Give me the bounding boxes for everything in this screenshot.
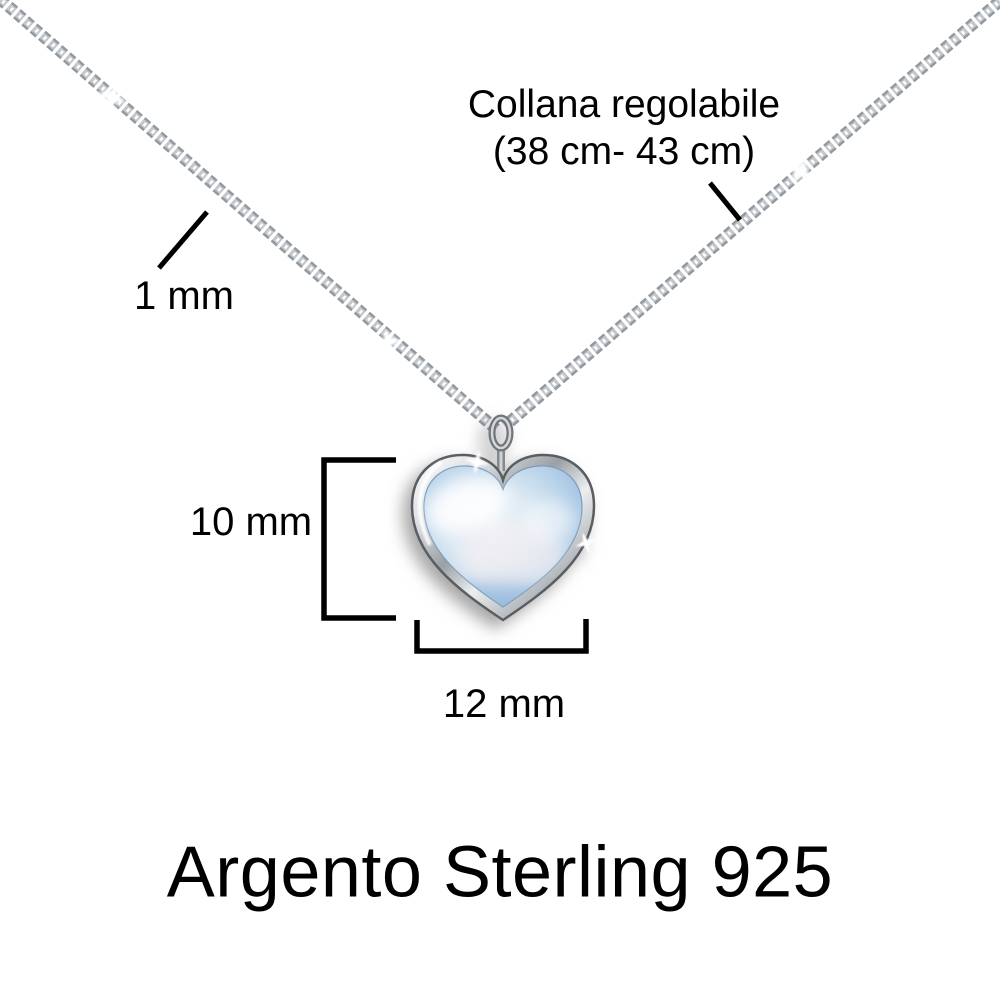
- chain-left-strand: [0, 0, 496, 429]
- pendant-height-label: 10 mm: [190, 499, 312, 545]
- height-bracket: [324, 460, 396, 618]
- chain-adjustable-label: Collana regolabile (38 cm- 43 cm): [468, 81, 780, 175]
- heart-pendant: [412, 418, 600, 620]
- chain-adjustable-label-line2: (38 cm- 43 cm): [468, 128, 780, 175]
- pointer-line-chain-label: [710, 183, 740, 220]
- pointer-line-thickness: [159, 212, 207, 268]
- width-bracket: [417, 619, 586, 651]
- pendant-bail: [492, 418, 510, 471]
- chain-adjustable-label-line1: Collana regolabile: [468, 81, 780, 128]
- pendant-width-label: 12 mm: [443, 681, 565, 727]
- chain-right-strand: [505, 0, 1000, 426]
- material-label: Argento Sterling 925: [167, 832, 833, 915]
- product-diagram: Collana regolabile (38 cm- 43 cm) 1 mm 1…: [0, 0, 1000, 1000]
- chain-thickness-label: 1 mm: [134, 273, 234, 319]
